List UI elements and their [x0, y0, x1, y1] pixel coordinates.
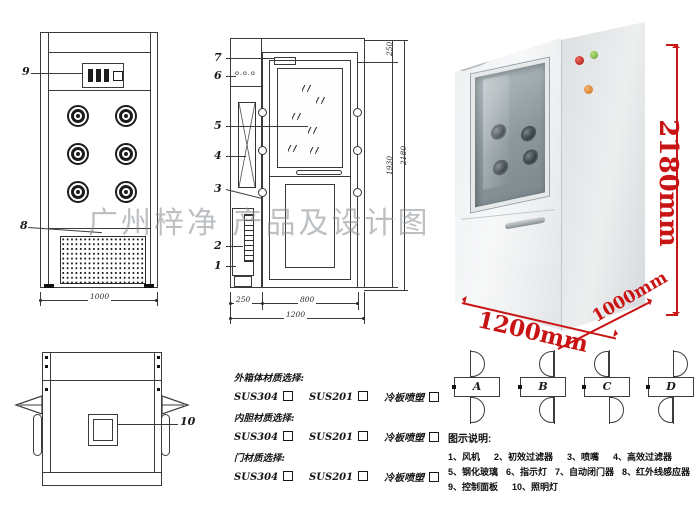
legend-item: 9、控制面板	[448, 480, 498, 495]
material-group-label: 外箱体材质选择:	[234, 370, 434, 384]
material-option-label: SUS201	[309, 392, 353, 403]
glass-hatch	[316, 97, 325, 104]
indicator-lights-dots: o.o.o	[235, 70, 256, 77]
material-group-label: 内胆材质选择:	[234, 410, 434, 424]
material-option: SUS304	[234, 471, 293, 483]
leader-line	[226, 126, 308, 127]
hinge-dot	[45, 365, 48, 368]
material-option-label: SUS201	[309, 472, 353, 483]
side-right-wall-line	[364, 38, 365, 288]
material-checkbox	[358, 431, 368, 441]
cabinet-foot	[44, 284, 54, 288]
front-right-column-line	[150, 33, 151, 287]
dim-total-width: 1200	[284, 311, 307, 319]
legend-item: 5、钢化玻璃	[448, 465, 498, 480]
side-nozzle-bump	[353, 108, 362, 117]
red-indicator-light	[575, 56, 584, 65]
door-swing-arc	[594, 351, 609, 377]
legend-item: 3、喷嘴	[567, 450, 599, 465]
door-mid-rail	[269, 176, 351, 177]
air-nozzle	[115, 143, 137, 165]
door-window	[471, 58, 549, 213]
door-handle	[505, 216, 545, 229]
material-option-label: 冷板喷塑	[384, 473, 424, 484]
panel-switch	[104, 69, 109, 82]
legend-item: 7、自动闭门器	[555, 465, 614, 480]
leader-line	[226, 58, 274, 59]
photo-nozzle	[521, 124, 536, 142]
door-closer-box	[274, 57, 296, 65]
material-option: 冷板喷塑	[384, 469, 439, 484]
air-shower-design-sheet: 9 8 1000 o.o.o	[0, 0, 700, 522]
cabinet-corner-edge	[561, 40, 562, 330]
dim-height-photo: 2180mm	[653, 73, 683, 293]
front-top-band-line	[48, 52, 150, 53]
inner-wall-line	[154, 353, 155, 472]
material-option-label: SUS304	[234, 472, 278, 483]
hinge-dot	[157, 388, 160, 391]
legend-item: 6、指示灯	[506, 465, 547, 480]
cabinet-foot	[144, 284, 154, 288]
air-nozzle	[67, 143, 89, 165]
door-swing-arc	[673, 351, 688, 377]
leader-line	[226, 246, 243, 247]
side-nozzle-bump	[258, 146, 267, 155]
orange-indicator-light	[584, 85, 593, 94]
leader-line	[31, 73, 82, 74]
top-band-line	[43, 380, 161, 381]
material-checkbox	[283, 471, 293, 481]
label-indicator: 6	[214, 70, 222, 81]
panel-switch	[88, 69, 93, 82]
air-nozzle	[115, 181, 137, 203]
material-option: SUS304	[234, 391, 293, 403]
legend-title: 图示说明:	[448, 430, 700, 445]
front-left-column-line	[48, 33, 49, 287]
label-filter: 2	[214, 240, 222, 251]
leader-line	[118, 424, 178, 425]
inner-wall-line	[50, 353, 51, 472]
legend-item: 4、高效过滤器	[613, 450, 672, 465]
dim-arrow	[362, 317, 365, 320]
dim-door-width: 800	[298, 296, 316, 304]
door-glass	[277, 68, 343, 168]
hinge-dot	[157, 365, 160, 368]
dim-top-section: 250	[386, 38, 394, 58]
material-option: SUS201	[309, 431, 368, 443]
material-group-label: 门材质选择:	[234, 450, 434, 464]
door-type-letter: B	[520, 377, 566, 397]
dim-extension-line	[358, 287, 398, 288]
leader-line	[226, 266, 236, 267]
label-door-closer: 7	[214, 52, 222, 63]
door-type-letter: C	[584, 377, 630, 397]
material-option-label: SUS201	[309, 432, 353, 443]
material-checkbox	[358, 471, 368, 481]
glass-hatch	[310, 147, 319, 154]
glass-hatch	[302, 85, 311, 92]
legend-row: 1、风机 2、初效过滤器 3、喷嘴 4、高效过滤器	[448, 450, 700, 465]
dim-arrow	[356, 302, 359, 305]
material-option: SUS201	[309, 471, 368, 483]
material-option-label: SUS304	[234, 432, 278, 443]
material-option-label: 冷板喷塑	[384, 433, 424, 444]
label-control-panel: 9	[22, 66, 30, 77]
leader-line	[226, 156, 246, 157]
door-swing-arc	[470, 351, 485, 377]
panel-switch	[96, 69, 101, 82]
legend-item: 1、风机	[448, 450, 480, 465]
side-nozzle-bump	[258, 108, 267, 117]
side-column-line	[230, 86, 262, 87]
left-door-handle-arc	[33, 414, 42, 456]
dim-extension-line	[262, 292, 263, 310]
label-lamp: 10	[180, 416, 195, 427]
material-checkbox	[429, 472, 439, 482]
sprayer-head	[479, 51, 491, 63]
dim-arrow	[261, 302, 264, 305]
door-swing-arc	[470, 397, 485, 423]
material-option-label: SUS304	[234, 392, 278, 403]
side-nozzle-bump	[258, 188, 267, 197]
door-type-icon-b: B	[518, 350, 574, 424]
leader-line	[226, 76, 236, 77]
photo-nozzle	[523, 148, 538, 166]
door-swing-arc	[539, 351, 554, 377]
side-nozzle-bump	[353, 146, 362, 155]
label-glass: 5	[214, 120, 222, 131]
label-grille: 8	[20, 220, 28, 231]
label-hepa: 4	[214, 150, 222, 161]
dim-end-tick	[666, 44, 678, 46]
air-nozzle	[67, 181, 89, 203]
door-type-letter: A	[454, 377, 500, 397]
material-option: SUS201	[309, 391, 368, 403]
material-option: SUS304	[234, 431, 293, 443]
hinge-dot	[45, 356, 48, 359]
dim-total-height: 2180	[400, 137, 408, 167]
door-type-icon-d: D	[646, 350, 700, 424]
hinge-dot	[45, 388, 48, 391]
material-checkbox	[283, 391, 293, 401]
bottom-band-line	[43, 472, 161, 473]
material-checkbox	[429, 432, 439, 442]
door-swing-arc	[658, 397, 673, 423]
dim-end-tick	[666, 314, 678, 316]
glass-hatch	[288, 145, 297, 152]
dim-arrow	[229, 302, 232, 305]
legend-row: 9、控制面板 10、照明灯	[448, 480, 700, 495]
air-gun-sprayer	[456, 54, 488, 73]
door-swing-arc	[539, 397, 554, 423]
legend-block: 图示说明: 1、风机 2、初效过滤器 3、喷嘴 4、高效过滤器 5、钢化玻璃 6…	[448, 430, 700, 495]
dim-arrow	[155, 299, 158, 302]
dim-left-section: 250	[234, 296, 252, 304]
door-swing-arc	[609, 397, 624, 423]
label-fan: 1	[214, 260, 222, 271]
door-lower-panel	[285, 184, 335, 268]
material-option: 冷板喷塑	[384, 389, 439, 404]
air-nozzle	[115, 105, 137, 127]
material-selection-block: 外箱体材质选择: SUS304 SUS201 冷板喷塑 内胆材质选择: SUS3…	[234, 364, 434, 484]
ceiling-lamp-inner	[93, 419, 113, 441]
material-option: 冷板喷塑	[384, 429, 439, 444]
return-air-grille	[60, 236, 146, 284]
legend-item: 8、红外线感应器	[622, 465, 690, 480]
dim-width-front: 1000	[88, 293, 111, 301]
dim-extension-line	[358, 292, 359, 310]
dim-door-height: 1930	[386, 147, 394, 177]
green-indicator-light	[590, 51, 598, 59]
legend-row: 5、钢化玻璃 6、指示灯 7、自动闭门器 8、红外线感应器	[448, 465, 700, 480]
cabinet-front-face	[455, 38, 561, 330]
glass-hatch	[308, 127, 317, 134]
material-checkbox	[283, 431, 293, 441]
fan-base	[234, 276, 252, 287]
label-nozzle: 3	[214, 183, 222, 194]
filter-stripes	[244, 214, 254, 262]
panel-display	[113, 71, 123, 81]
front-panel-band-line	[48, 90, 150, 91]
legend-item: 2、初效过滤器	[494, 450, 553, 465]
hinge-dot	[157, 356, 160, 359]
door-type-letter: D	[648, 377, 694, 397]
material-options-row: SUS304 SUS201 冷板喷塑	[234, 429, 434, 444]
dim-arrow	[39, 299, 42, 302]
air-nozzle	[67, 105, 89, 127]
control-panel	[82, 63, 124, 88]
dim-arrow	[229, 317, 232, 320]
material-checkbox	[429, 392, 439, 402]
window-glare	[483, 74, 509, 190]
material-checkbox	[358, 391, 368, 401]
material-options-row: SUS304 SUS201 冷板喷塑	[234, 469, 434, 484]
side-nozzle-bump	[353, 188, 362, 197]
dim-arrow-right	[613, 329, 623, 339]
door-type-icon-c: C	[582, 350, 638, 424]
door-type-icon-a: A	[452, 350, 508, 424]
dim-extension-line	[364, 290, 408, 291]
door-handle-slot	[296, 170, 342, 175]
right-door-handle-arc	[161, 414, 170, 456]
material-option-label: 冷板喷塑	[384, 393, 424, 404]
legend-item: 10、照明灯	[512, 480, 558, 495]
material-options-row: SUS304 SUS201 冷板喷塑	[234, 389, 434, 404]
glass-hatch	[292, 113, 301, 120]
hepa-filter-box	[238, 102, 256, 188]
